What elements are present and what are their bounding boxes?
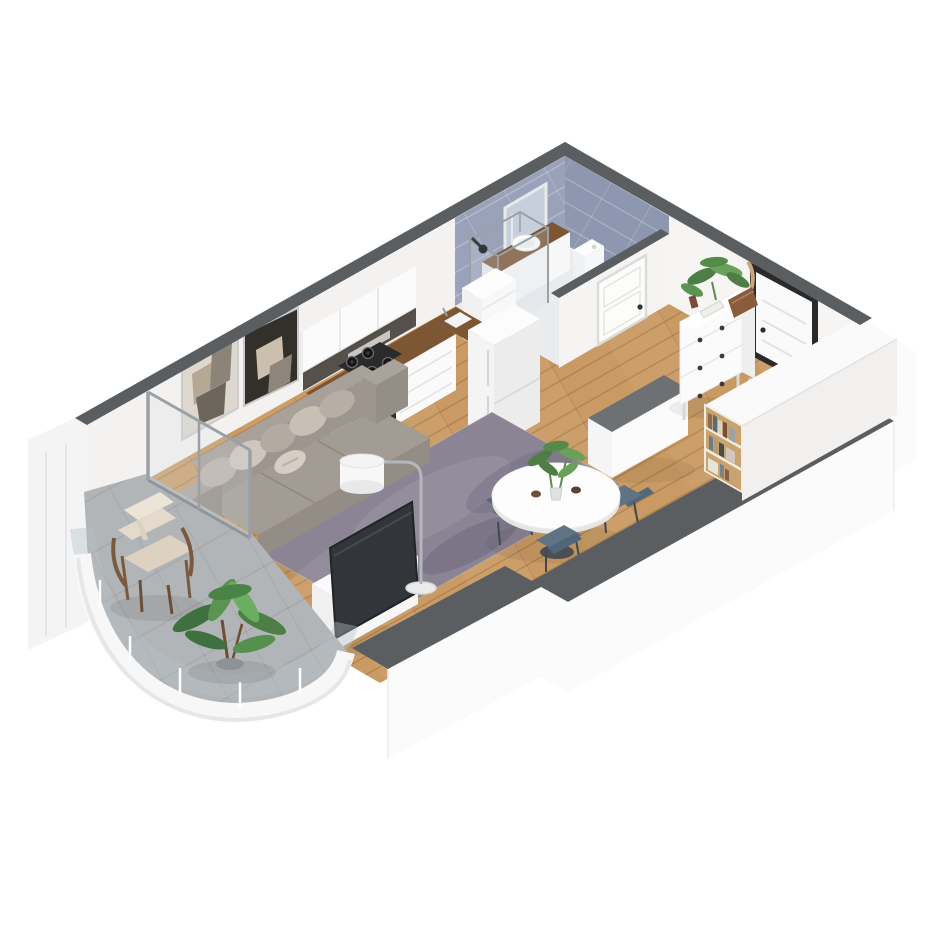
apartment-floorplan-render [0, 0, 950, 950]
vase [550, 488, 562, 500]
door-handle-icon [637, 304, 642, 309]
floorplan-stage [0, 0, 950, 950]
lamp-shade [340, 454, 384, 494]
door-handle-icon [760, 327, 765, 332]
